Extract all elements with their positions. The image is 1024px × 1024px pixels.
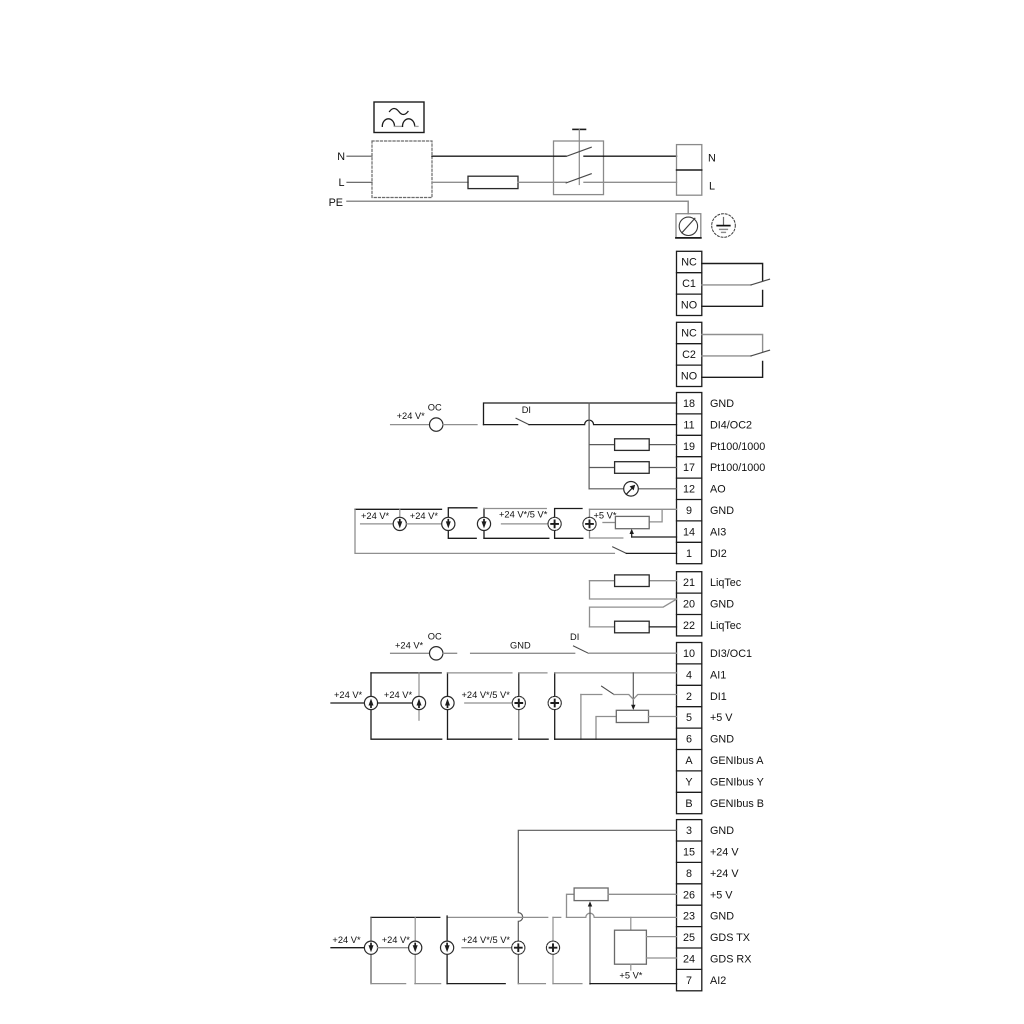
svg-text:+24 V*/5 V*: +24 V*/5 V* [462,935,511,945]
svg-text:8: 8 [686,868,692,880]
svg-text:GND: GND [710,825,734,837]
svg-text:+24 V: +24 V [710,868,739,880]
svg-text:21: 21 [683,577,695,589]
svg-text:AI2: AI2 [710,975,726,987]
svg-text:12: 12 [683,484,695,496]
svg-text:+24 V*/5 V*: +24 V*/5 V* [499,510,548,520]
svg-text:C2: C2 [682,349,696,361]
svg-text:19: 19 [683,441,695,453]
svg-text:N: N [337,151,345,163]
svg-text:25: 25 [683,932,695,944]
svg-text:1: 1 [686,548,692,560]
svg-text:+5 V: +5 V [710,889,733,901]
svg-text:GND: GND [710,599,734,611]
svg-text:10: 10 [683,648,695,660]
svg-text:Pt100/1000: Pt100/1000 [710,441,765,453]
svg-text:NO: NO [681,371,697,383]
svg-text:4: 4 [686,669,692,681]
svg-text:GND: GND [710,398,734,410]
svg-text:20: 20 [683,599,695,611]
svg-text:AO: AO [710,484,726,496]
svg-text:L: L [338,177,344,189]
svg-text:GDS TX: GDS TX [710,932,750,944]
svg-text:OC: OC [428,631,442,641]
svg-text:GND: GND [510,640,531,650]
svg-text:22: 22 [683,620,695,632]
svg-text:DI3/OC1: DI3/OC1 [710,648,752,660]
svg-text:6: 6 [686,734,692,746]
svg-text:AI3: AI3 [710,526,726,538]
svg-text:+24 V*: +24 V* [384,690,413,700]
svg-text:GDS RX: GDS RX [710,954,751,966]
svg-text:+5 V*: +5 V* [594,511,617,521]
svg-text:14: 14 [683,526,695,538]
svg-text:+5 V*: +5 V* [619,970,642,980]
svg-text:L: L [709,181,715,193]
svg-text:17: 17 [683,462,695,474]
svg-text:9: 9 [686,505,692,517]
svg-text:LiqTec: LiqTec [710,620,742,632]
svg-text:15: 15 [683,847,695,859]
svg-text:DI: DI [522,405,531,415]
svg-text:Y: Y [685,776,692,788]
svg-text:C1: C1 [682,278,696,290]
svg-text:DI1: DI1 [710,691,727,703]
svg-text:DI: DI [570,632,579,642]
svg-text:GENIbus Y: GENIbus Y [710,776,764,788]
svg-text:GENIbus B: GENIbus B [710,798,764,810]
svg-text:+24 V*/5 V*: +24 V*/5 V* [462,690,511,700]
svg-text:N: N [708,153,716,165]
svg-text:B: B [685,798,692,810]
svg-text:3: 3 [686,825,692,837]
svg-text:5: 5 [686,712,692,724]
svg-text:GENIbus A: GENIbus A [710,755,764,767]
svg-text:LiqTec: LiqTec [710,577,742,589]
svg-text:GND: GND [710,505,734,517]
svg-text:PE: PE [329,197,343,209]
svg-text:NO: NO [681,300,697,312]
svg-text:GND: GND [710,734,734,746]
svg-text:2: 2 [686,691,692,703]
svg-text:+24 V*: +24 V* [332,935,361,945]
svg-text:DI2: DI2 [710,548,727,560]
svg-text:23: 23 [683,911,695,923]
svg-text:A: A [685,755,693,767]
svg-text:NC: NC [681,257,697,269]
svg-text:18: 18 [683,398,695,410]
svg-text:+24 V*: +24 V* [397,411,426,421]
svg-text:+24 V*: +24 V* [395,641,424,651]
svg-text:DI4/OC2: DI4/OC2 [710,419,752,431]
svg-text:26: 26 [683,889,695,901]
svg-text:11: 11 [683,419,694,431]
svg-text:+5 V: +5 V [710,712,733,724]
svg-text:+24 V*: +24 V* [410,511,439,521]
svg-text:NC: NC [681,328,697,340]
svg-text:+24 V*: +24 V* [382,935,411,945]
svg-text:GND: GND [710,911,734,923]
svg-text:+24 V*: +24 V* [361,511,390,521]
svg-text:OC: OC [428,403,442,413]
svg-text:7: 7 [686,975,692,987]
svg-text:+24 V*: +24 V* [334,690,363,700]
svg-text:AI1: AI1 [710,669,726,681]
svg-text:Pt100/1000: Pt100/1000 [710,462,765,474]
svg-text:+24 V: +24 V [710,847,739,859]
svg-text:24: 24 [683,954,695,966]
